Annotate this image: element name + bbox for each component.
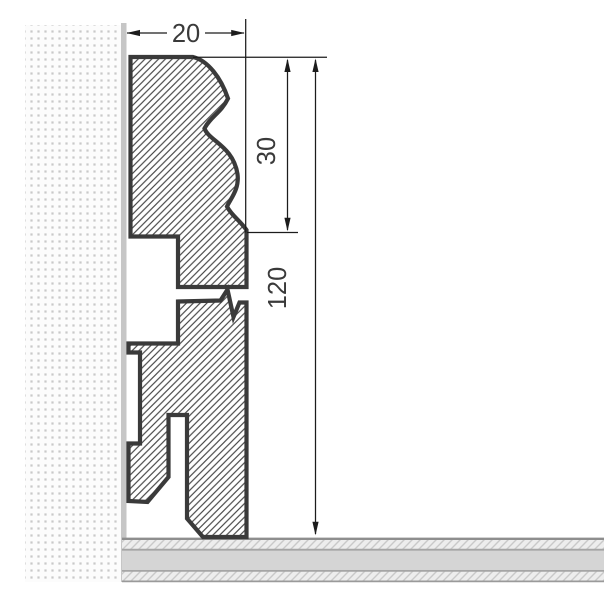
arrowhead-down-icon [312,522,318,536]
wall-section-pattern [25,25,121,582]
wall-surface-line [121,23,127,582]
floor-screed-top-band [122,539,604,550]
technical-drawing-canvas: 20 30 120 [0,0,604,604]
arrowhead-left-icon [127,30,141,36]
skirting-profile-lower-section [129,290,247,538]
dimension-label-120: 120 [264,267,292,310]
arrowhead-down-icon [284,218,290,232]
skirting-profile-upper-section [131,57,247,287]
dimension-width: 20 [127,20,245,48]
floor-section [122,539,604,582]
dimension-top-profile-height: 30 [253,59,291,232]
dimension-label-width: 20 [172,20,200,48]
floor-screed-bottom-band [122,571,604,582]
arrowhead-up-icon [312,59,318,73]
arrowhead-up-icon [284,59,290,73]
dimension-total-height: 120 [264,59,319,536]
technical-drawing-page: 20 30 120 [0,0,604,604]
floor-core-band [122,550,604,572]
arrowhead-right-icon [231,30,245,36]
dimension-label-30: 30 [253,137,281,165]
